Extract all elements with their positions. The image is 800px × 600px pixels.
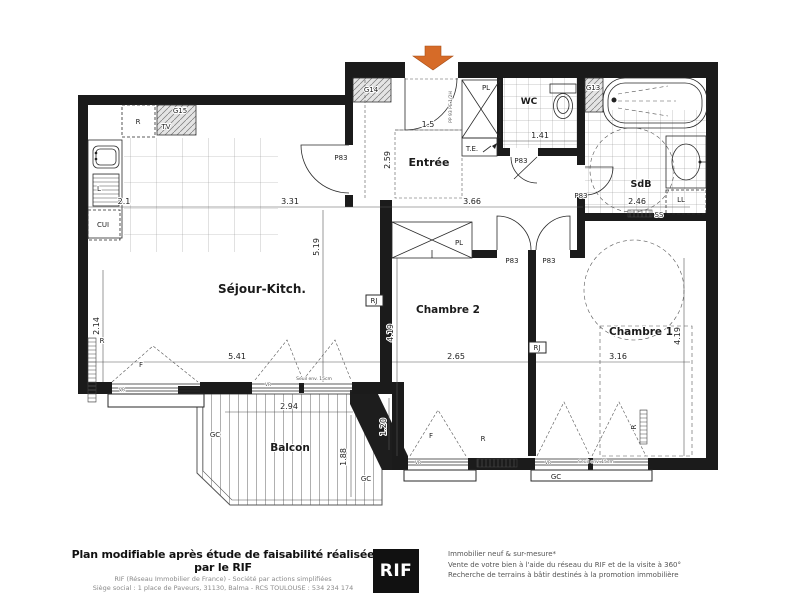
dimension-label: 3.31 <box>281 197 299 206</box>
dimension-label: 2.46 <box>628 197 646 206</box>
equipment-tag: P83 <box>334 154 347 162</box>
equipment-tag: GC <box>210 431 220 439</box>
dimension-label: 5.41 <box>228 352 246 361</box>
rif-logo: RIF <box>373 549 419 593</box>
equipment-tag: VR <box>545 460 551 466</box>
equipment-tag: Seuil env. 15cm <box>296 376 332 382</box>
dimension-label: 1.5 <box>422 120 435 129</box>
equipment-tag: TV <box>160 123 170 131</box>
room-label-sdb: SdB <box>631 179 652 190</box>
equipment-tag: R <box>630 424 638 429</box>
equipment-tag: GC <box>361 475 371 483</box>
entrance-arrow <box>413 46 453 70</box>
dimension-label: 3.16 <box>609 352 627 361</box>
footer: Plan modifiable après étude de faisabili… <box>0 543 800 600</box>
room-label-s-jour-kitch-: Séjour-Kitch. <box>218 282 306 296</box>
equipment-tag: P83 <box>574 192 587 200</box>
dimension-label: 2.1 <box>118 197 131 206</box>
equipment-tag: T.E. <box>465 145 478 153</box>
footer-disclaimer: Plan modifiable après étude de faisabili… <box>62 548 384 574</box>
equipment-tag: P83 <box>514 157 527 165</box>
dimension-label: 2.65 <box>447 352 465 361</box>
equipment-tag: R <box>481 435 486 443</box>
dimension-label: 3.66 <box>463 197 481 206</box>
equipment-tag: Seuil env. 15cm <box>578 459 614 465</box>
equipment-tag: RJ <box>371 297 378 305</box>
equipment-tag: G14 <box>364 86 379 94</box>
dimension-label: 4.19 <box>673 327 682 345</box>
equipment-tag: P83 <box>542 257 555 265</box>
equipment-tag: VR <box>415 460 421 466</box>
equipment-tag: VR <box>119 387 125 393</box>
footer-service-1: Immobilier neuf & sur-mesure* <box>448 549 788 560</box>
footer-service-3: Recherche de terrains à bâtir destinés à… <box>448 570 788 581</box>
equipment-tag: LL <box>677 196 685 204</box>
footer-service-2: Vente de votre bien à l'aide du réseau d… <box>448 560 788 571</box>
equipment-tag: RJ <box>534 344 541 352</box>
dimension-label: 1.20 <box>379 418 388 436</box>
floor-plan: Séjour-Kitch.EntréeWCSdBChambre 2Chambre… <box>0 0 800 543</box>
equipment-tag: SS <box>655 211 664 219</box>
equipment-tag: PL <box>455 239 463 247</box>
rif-logo-text: RIF <box>380 561 413 581</box>
equipment-tag: VR <box>265 382 271 388</box>
footer-services: Immobilier neuf & sur-mesure* Vente de v… <box>448 549 788 581</box>
equipment-tag: G15 <box>173 107 187 115</box>
footer-company-line2: Siège social : 1 place de Paveurs, 31130… <box>62 584 384 592</box>
room-label-chambre-2: Chambre 2 <box>416 304 480 316</box>
equipment-tag: L <box>97 185 101 193</box>
dimension-label: 5.19 <box>312 238 321 256</box>
footer-company-line1: RIF (Réseau Immobilier de France) - Soci… <box>62 575 384 583</box>
dimension-label: 4.19 <box>386 324 395 342</box>
equipment-tag: F <box>429 432 433 440</box>
equipment-tag: R <box>100 337 105 345</box>
dimension-label: 2.59 <box>383 151 392 169</box>
equipment-tag: PP 93 PE 1/2H <box>448 91 454 123</box>
dimension-label: 1.88 <box>339 448 348 466</box>
dimension-label: 2.14 <box>92 317 101 335</box>
equipment-tag: R <box>136 118 141 126</box>
dimension-label: 1.41 <box>531 131 549 140</box>
closets <box>392 80 500 258</box>
equipment-tag: GC <box>551 473 561 481</box>
equipment-tag: G13 <box>586 84 600 92</box>
equipment-tag: CUI <box>97 221 109 229</box>
equipment-tag: PL <box>482 84 490 92</box>
room-label-balcon: Balcon <box>270 442 310 454</box>
dimension-label: 2.94 <box>280 402 298 411</box>
room-label-chambre-1: Chambre 1 <box>609 326 673 338</box>
equipment-tag: P83 <box>505 257 518 265</box>
room-label-entr-e: Entrée <box>409 156 450 169</box>
equipment-tag: F <box>139 361 143 369</box>
room-label-wc: WC <box>521 97 538 107</box>
